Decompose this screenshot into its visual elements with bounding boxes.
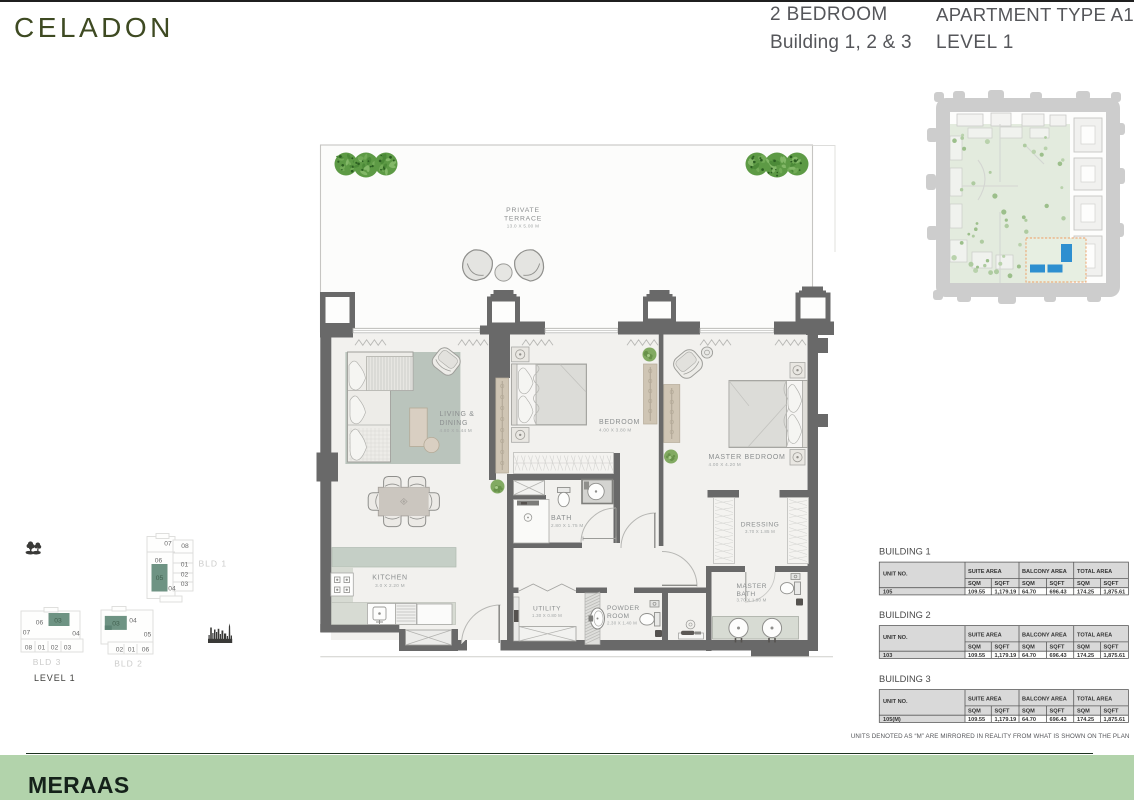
svg-text:BALCONY AREA: BALCONY AREA bbox=[1022, 633, 1067, 639]
svg-text:1.30 X 0.80 M: 1.30 X 0.80 M bbox=[532, 613, 562, 618]
svg-text:13.0 X 5.00 M: 13.0 X 5.00 M bbox=[507, 224, 540, 229]
svg-text:04: 04 bbox=[168, 586, 176, 593]
svg-text:MASTER BEDROOM: MASTER BEDROOM bbox=[709, 454, 786, 461]
svg-text:109.55: 109.55 bbox=[968, 653, 985, 659]
svg-text:3.70 X 1.90 M: 3.70 X 1.90 M bbox=[737, 598, 767, 603]
svg-text:64.70: 64.70 bbox=[1022, 589, 1036, 595]
svg-text:TOTAL AREA: TOTAL AREA bbox=[1077, 697, 1112, 703]
svg-text:4.00 X 3.80 M: 4.00 X 3.80 M bbox=[599, 428, 632, 433]
svg-text:07: 07 bbox=[164, 541, 172, 548]
svg-text:BLD 1: BLD 1 bbox=[199, 559, 228, 569]
svg-text:DINING: DINING bbox=[440, 420, 469, 427]
svg-text:04: 04 bbox=[129, 618, 137, 625]
svg-text:BLD 2: BLD 2 bbox=[114, 659, 143, 669]
svg-text:1,875.61: 1,875.61 bbox=[1104, 717, 1126, 723]
svg-text:BALCONY AREA: BALCONY AREA bbox=[1022, 697, 1067, 703]
svg-text:SQFT: SQFT bbox=[1104, 645, 1119, 651]
svg-text:02: 02 bbox=[181, 572, 189, 579]
svg-text:TERRACE: TERRACE bbox=[504, 216, 542, 223]
svg-text:1,875.61: 1,875.61 bbox=[1104, 589, 1126, 595]
svg-text:08: 08 bbox=[25, 645, 33, 652]
svg-text:06: 06 bbox=[142, 647, 150, 654]
svg-text:DRESSING: DRESSING bbox=[741, 522, 779, 529]
svg-text:174.25: 174.25 bbox=[1077, 589, 1094, 595]
svg-text:SQFT: SQFT bbox=[1050, 709, 1065, 715]
svg-text:TOTAL AREA: TOTAL AREA bbox=[1077, 569, 1112, 575]
svg-text:07: 07 bbox=[23, 630, 31, 637]
svg-text:SQM: SQM bbox=[1077, 581, 1090, 587]
svg-text:04: 04 bbox=[72, 631, 80, 638]
svg-text:UNIT NO.: UNIT NO. bbox=[883, 699, 908, 705]
svg-text:SQM: SQM bbox=[1022, 709, 1035, 715]
svg-text:1,875.61: 1,875.61 bbox=[1104, 653, 1126, 659]
svg-text:02: 02 bbox=[116, 647, 124, 654]
svg-text:03: 03 bbox=[181, 581, 189, 588]
svg-text:4.00 X 4.20 M: 4.00 X 4.20 M bbox=[709, 462, 742, 467]
svg-text:08: 08 bbox=[181, 543, 189, 550]
svg-text:LEVEL 1: LEVEL 1 bbox=[34, 673, 76, 683]
svg-text:SUITE AREA: SUITE AREA bbox=[968, 569, 1002, 575]
svg-text:BEDROOM: BEDROOM bbox=[599, 419, 640, 426]
svg-text:696.43: 696.43 bbox=[1050, 653, 1067, 659]
svg-text:174.25: 174.25 bbox=[1077, 653, 1094, 659]
svg-text:SQM: SQM bbox=[968, 645, 981, 651]
svg-text:03: 03 bbox=[64, 645, 72, 652]
svg-text:BUILDING 2: BUILDING 2 bbox=[879, 610, 931, 620]
svg-text:1,179.19: 1,179.19 bbox=[995, 717, 1017, 723]
svg-text:1,179.19: 1,179.19 bbox=[995, 653, 1017, 659]
svg-text:01: 01 bbox=[181, 562, 189, 569]
svg-text:01: 01 bbox=[128, 647, 136, 654]
svg-text:SQM: SQM bbox=[968, 709, 981, 715]
svg-text:UNIT NO.: UNIT NO. bbox=[883, 635, 908, 641]
svg-text:03: 03 bbox=[54, 618, 62, 625]
svg-text:PRIVATE: PRIVATE bbox=[506, 207, 540, 214]
svg-text:64.70: 64.70 bbox=[1022, 717, 1036, 723]
svg-text:SQFT: SQFT bbox=[995, 581, 1010, 587]
svg-text:BUILDING 1: BUILDING 1 bbox=[879, 547, 931, 557]
svg-text:2.80 X 1.75 M: 2.80 X 1.75 M bbox=[551, 523, 584, 528]
svg-text:SQFT: SQFT bbox=[1104, 709, 1119, 715]
svg-text:105: 105 bbox=[883, 589, 892, 595]
svg-text:109.55: 109.55 bbox=[968, 589, 985, 595]
svg-text:109.55: 109.55 bbox=[968, 717, 985, 723]
svg-text:SQM: SQM bbox=[1022, 581, 1035, 587]
svg-text:3.0 X 2.20 M: 3.0 X 2.20 M bbox=[375, 583, 405, 588]
svg-text:SQFT: SQFT bbox=[995, 709, 1010, 715]
svg-text:SQM: SQM bbox=[1077, 709, 1090, 715]
svg-text:05: 05 bbox=[144, 632, 152, 639]
svg-text:BATH: BATH bbox=[551, 515, 572, 522]
svg-text:ROOM: ROOM bbox=[607, 613, 630, 620]
svg-text:696.43: 696.43 bbox=[1050, 717, 1067, 723]
svg-text:SQFT: SQFT bbox=[1104, 581, 1119, 587]
svg-text:LIVING &: LIVING & bbox=[440, 411, 475, 418]
svg-text:105(M): 105(M) bbox=[883, 717, 901, 723]
svg-text:174.25: 174.25 bbox=[1077, 717, 1094, 723]
svg-text:696.43: 696.43 bbox=[1050, 589, 1067, 595]
svg-text:SUITE AREA: SUITE AREA bbox=[968, 697, 1002, 703]
svg-text:SQFT: SQFT bbox=[1050, 581, 1065, 587]
svg-text:KITCHEN: KITCHEN bbox=[372, 575, 408, 582]
svg-text:SUITE AREA: SUITE AREA bbox=[968, 633, 1002, 639]
svg-text:BALCONY AREA: BALCONY AREA bbox=[1022, 569, 1067, 575]
svg-text:103: 103 bbox=[883, 653, 892, 659]
svg-text:MASTER: MASTER bbox=[737, 583, 767, 590]
svg-text:05: 05 bbox=[156, 575, 164, 582]
svg-text:1,179.19: 1,179.19 bbox=[995, 589, 1017, 595]
svg-text:01: 01 bbox=[38, 645, 46, 652]
svg-text:BLD 3: BLD 3 bbox=[33, 657, 62, 667]
svg-text:SQM: SQM bbox=[1077, 645, 1090, 651]
svg-text:02: 02 bbox=[51, 645, 59, 652]
svg-text:64.70: 64.70 bbox=[1022, 653, 1036, 659]
svg-text:2.30 X 1.40 M: 2.30 X 1.40 M bbox=[607, 621, 637, 626]
svg-text:SQFT: SQFT bbox=[1050, 645, 1065, 651]
svg-text:UNIT NO.: UNIT NO. bbox=[883, 572, 908, 578]
svg-text:06: 06 bbox=[36, 620, 44, 627]
svg-text:POWDER: POWDER bbox=[607, 605, 640, 612]
svg-text:SQM: SQM bbox=[1022, 645, 1035, 651]
svg-text:UTILITY: UTILITY bbox=[533, 606, 561, 613]
svg-text:TOTAL AREA: TOTAL AREA bbox=[1077, 633, 1112, 639]
svg-text:3.70 X 1.85 M: 3.70 X 1.85 M bbox=[745, 529, 775, 534]
svg-text:03: 03 bbox=[112, 621, 120, 628]
svg-text:SQM: SQM bbox=[968, 581, 981, 587]
svg-text:SQFT: SQFT bbox=[995, 645, 1010, 651]
svg-text:BUILDING 3: BUILDING 3 bbox=[879, 674, 931, 684]
svg-text:06: 06 bbox=[155, 558, 163, 565]
svg-text:UNITS DENOTED AS “M” ARE MIRRO: UNITS DENOTED AS “M” ARE MIRRORED IN REA… bbox=[851, 733, 1130, 740]
svg-text:4.80 X 5.44 M: 4.80 X 5.44 M bbox=[440, 428, 473, 433]
